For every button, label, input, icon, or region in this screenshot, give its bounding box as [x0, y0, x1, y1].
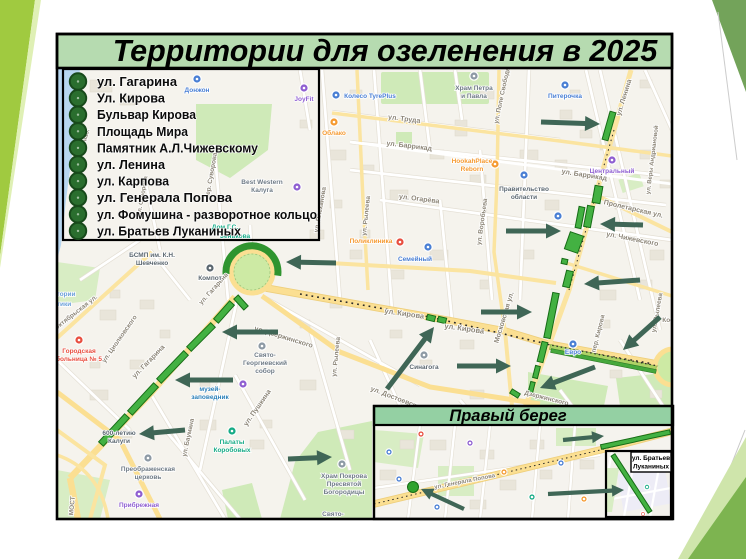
svg-text:области: области — [511, 193, 537, 201]
svg-text:Коробовых: Коробовых — [213, 446, 250, 454]
svg-text:Георгиевский: Георгиевский — [243, 359, 287, 367]
svg-text:Территории для озеленения в 20: Территории для озеленения в 2025 — [113, 34, 659, 68]
svg-text:Калуга: Калуга — [251, 187, 273, 194]
svg-text:Правительство: Правительство — [499, 186, 549, 193]
svg-text:Палаты: Палаты — [220, 439, 245, 446]
svg-text:ул. Карпова: ул. Карпова — [97, 175, 170, 189]
svg-text:ул. Гагарина: ул. Гагарина — [97, 75, 178, 89]
svg-text:Преображенская: Преображенская — [121, 465, 175, 473]
svg-text:Евро: Евро — [565, 349, 581, 356]
svg-text:Памятник А.Л.Чижевскому: Памятник А.Л.Чижевскому — [97, 141, 258, 155]
svg-text:собор: собор — [255, 367, 275, 375]
svg-text:Храм Петра: Храм Петра — [455, 85, 493, 92]
svg-text:Прибрежная: Прибрежная — [119, 501, 159, 509]
svg-text:тики: тики — [57, 301, 71, 308]
svg-text:ул. Братьев Луканиных: ул. Братьев Луканиных — [97, 224, 241, 238]
svg-text:Храм Покрова: Храм Покрова — [321, 473, 367, 480]
svg-text:Свято-: Свято- — [322, 511, 344, 518]
svg-text:Бульвар Кирова: Бульвар Кирова — [97, 108, 197, 122]
svg-text:заповедник: заповедник — [191, 394, 229, 401]
svg-text:Best Western: Best Western — [241, 179, 282, 186]
svg-text:Питерочка: Питерочка — [548, 93, 582, 100]
svg-text:JoyFit: JoyFit — [294, 96, 314, 103]
svg-text:Площадь Мира: Площадь Мира — [97, 125, 189, 139]
svg-text:и Павла: и Павла — [461, 93, 487, 100]
svg-text:Reborn: Reborn — [461, 166, 484, 173]
svg-text:Ул. Кирова: Ул. Кирова — [97, 92, 166, 106]
svg-text:Поликлиника: Поликлиника — [350, 238, 393, 245]
svg-text:Богородицы: Богородицы — [324, 489, 365, 496]
svg-text:Семейный: Семейный — [398, 255, 432, 263]
svg-text:Колесо TyrePlus: Колесо TyrePlus — [344, 93, 396, 100]
svg-text:ул. Фомушина - разворотное кол: ул. Фомушина - разворотное кольцо — [97, 208, 317, 222]
svg-text:музей-: музей- — [199, 385, 220, 393]
svg-text:ул. Ленина: ул. Ленина — [97, 158, 166, 172]
svg-text:Свято-: Свято- — [254, 352, 276, 359]
svg-text:ул. Генерала Попова: ул. Генерала Попова — [97, 191, 233, 205]
svg-text:Правый берег: Правый берег — [449, 407, 566, 425]
svg-text:Компот: Компот — [198, 275, 222, 282]
svg-text:Донжон: Донжон — [185, 87, 210, 94]
svg-text:церковь: церковь — [135, 474, 162, 481]
svg-text:тории: тории — [56, 291, 75, 298]
svg-text:БСМП им. К.Н.: БСМП им. К.Н. — [129, 252, 175, 259]
svg-text:Пресвятой: Пресвятой — [327, 480, 362, 488]
svg-text:ул. Братьев: ул. Братьев — [632, 455, 670, 462]
svg-text:больница № 5: больница № 5 — [56, 355, 102, 363]
svg-text:Шевченко: Шевченко — [136, 260, 168, 267]
svg-text:HookahPlace: HookahPlace — [452, 158, 493, 165]
svg-text:Синагога: Синагога — [409, 364, 439, 371]
svg-text:Облако: Облако — [322, 129, 346, 137]
svg-text:Городская: Городская — [62, 348, 96, 355]
svg-text:600-летию: 600-летию — [102, 430, 136, 437]
svg-text:Калуги: Калуги — [108, 438, 130, 445]
svg-text:Центральный: Центральный — [590, 167, 635, 175]
svg-text:Луканиных: Луканиных — [633, 464, 669, 471]
